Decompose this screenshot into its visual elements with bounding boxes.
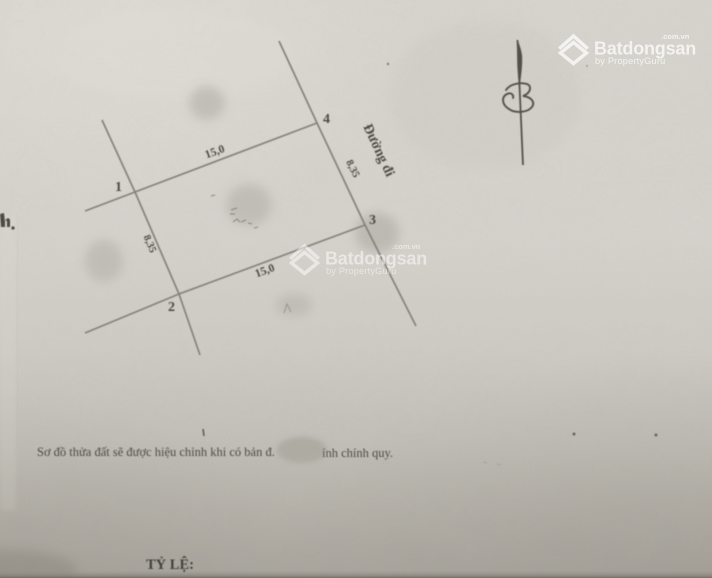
svg-text:4: 4 [323,112,330,127]
svg-text:Sơ đồ thửa đất sẽ được hiệu ch: Sơ đồ thửa đất sẽ được hiệu chỉnh khi có… [37,445,275,459]
svg-text:1: 1 [115,180,122,195]
svg-text:3: 3 [369,213,376,228]
svg-text:TỶ LỆ:: TỶ LỆ: [146,556,194,573]
svg-text:2: 2 [168,300,175,315]
svg-text:ính chính quy.: ính chính quy. [322,446,393,460]
